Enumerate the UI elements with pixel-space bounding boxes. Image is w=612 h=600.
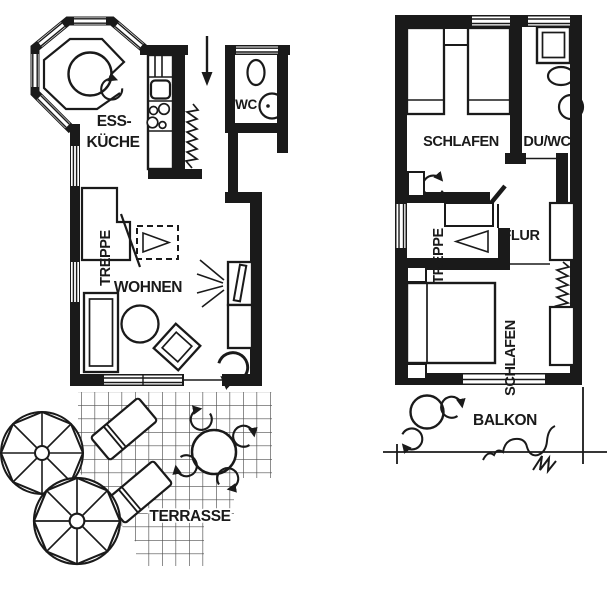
shower bbox=[537, 27, 570, 63]
floorplan-drawing: TERRASSE bbox=[0, 0, 612, 600]
stair-direction-triangle bbox=[143, 233, 169, 252]
tv-unit bbox=[197, 260, 252, 307]
wc-window bbox=[236, 47, 278, 54]
ground-floor-plan: ESS- KÜCHE WC TREPPE WOHNEN bbox=[33, 19, 290, 388]
bedroom1-door-leaf bbox=[491, 186, 505, 203]
living-room-windows bbox=[104, 376, 222, 385]
terrace-label: TERRASSE bbox=[149, 508, 230, 525]
staircase-upper bbox=[445, 203, 498, 252]
parasol bbox=[34, 478, 120, 564]
wardrobe bbox=[550, 307, 574, 365]
bedroom2-label: SCHLAFEN bbox=[503, 320, 519, 396]
balcony-label: BALKON bbox=[473, 412, 537, 429]
tv-beam-lines bbox=[197, 260, 224, 307]
nightstand bbox=[407, 364, 426, 379]
stair-landing bbox=[445, 203, 493, 226]
washbasin-drain bbox=[266, 104, 270, 108]
staircase-ground bbox=[82, 188, 178, 267]
toilet bbox=[248, 60, 265, 85]
stair-direction-triangle bbox=[456, 231, 488, 252]
chair-arrow bbox=[441, 397, 462, 418]
balcony-table bbox=[411, 396, 444, 429]
bedroom2-bed bbox=[407, 267, 495, 379]
bedroom1-label: SCHLAFEN bbox=[423, 134, 499, 150]
shower-wc-label: DU/WC bbox=[523, 134, 571, 150]
nightstand bbox=[407, 267, 426, 282]
chimney-hatch bbox=[556, 262, 569, 312]
stairs-label-upper: TREPPE bbox=[431, 227, 447, 283]
living-label: WOHNEN bbox=[114, 279, 182, 296]
hedge-hatch bbox=[186, 104, 198, 168]
nightstand bbox=[444, 28, 468, 45]
wc-label: WC bbox=[235, 97, 257, 112]
cabinet bbox=[228, 305, 252, 348]
kitchen-counter bbox=[147, 55, 173, 169]
wardrobe bbox=[550, 203, 574, 260]
radiator bbox=[408, 172, 424, 196]
upper-floor-plan: SCHLAFEN DU/WC TREPPE FLUR SCHLAFEN BALK… bbox=[383, 15, 607, 471]
bedroom1-beds bbox=[407, 28, 510, 114]
terrace-area: TERRASSE bbox=[1, 392, 272, 566]
floorplan-canvas: TERRASSE bbox=[0, 0, 612, 600]
dining-table bbox=[69, 53, 112, 96]
sofa bbox=[84, 293, 118, 372]
kitchen-label-line1: ESS- bbox=[97, 113, 132, 130]
hall-label: FLUR bbox=[502, 228, 540, 244]
kitchen-label-line2: KÜCHE bbox=[86, 134, 139, 151]
coffee-table bbox=[122, 306, 159, 343]
entrance-arrow bbox=[202, 36, 213, 86]
balcony bbox=[383, 387, 607, 471]
stairs-label-ground: TREPPE bbox=[98, 229, 114, 285]
plant-scribble bbox=[483, 426, 556, 471]
armchair bbox=[154, 324, 201, 371]
